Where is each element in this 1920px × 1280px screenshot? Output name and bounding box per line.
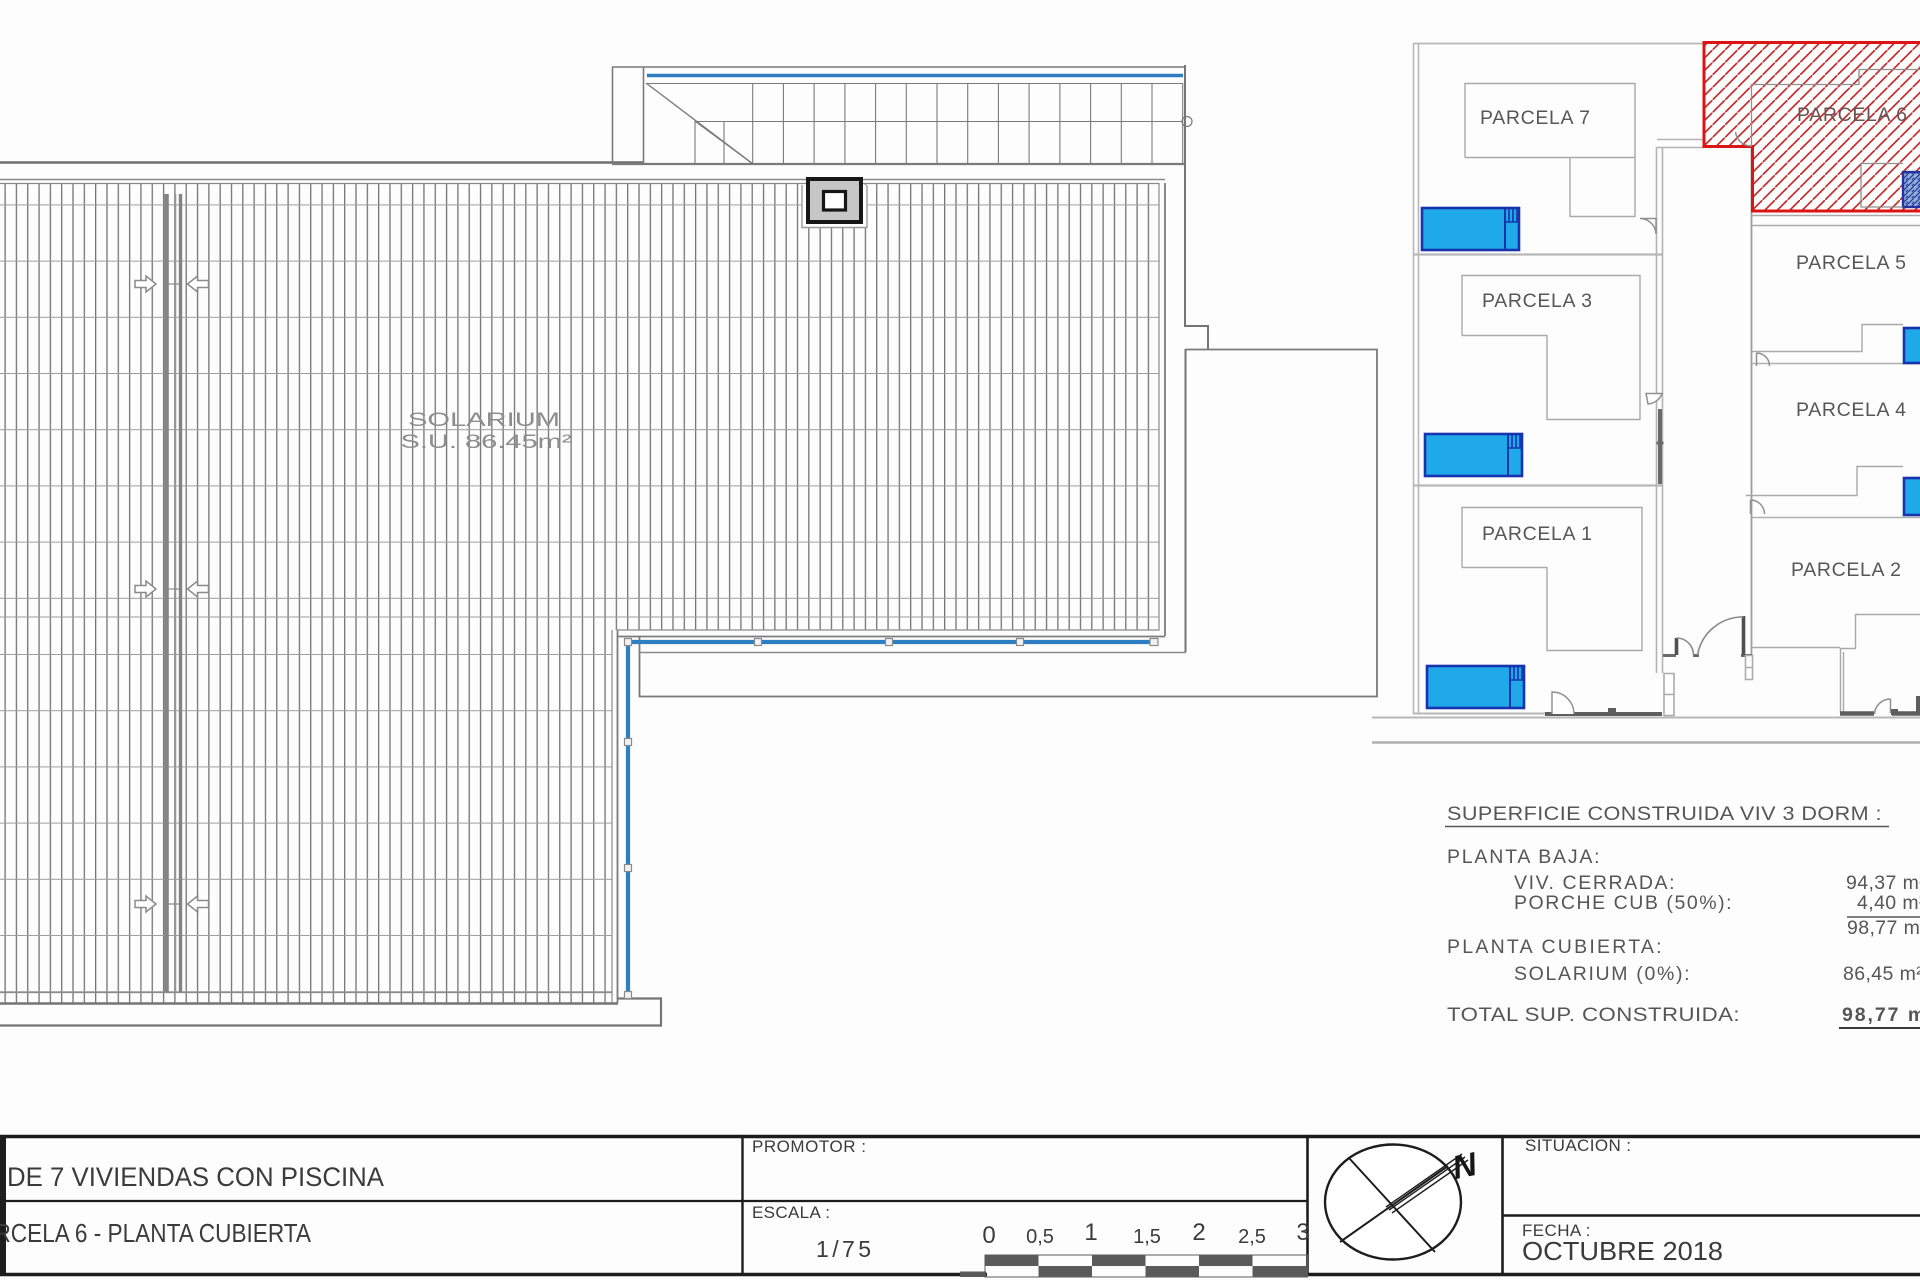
svg-text:3: 3 (1296, 1219, 1309, 1246)
svg-text:PARCELA 5: PARCELA 5 (1796, 252, 1906, 274)
svg-text:2,5: 2,5 (1238, 1226, 1266, 1248)
svg-text:DE 7 VIVIENDAS CON PISCINA: DE 7 VIVIENDAS CON PISCINA (7, 1162, 384, 1192)
svg-text:PARCELA 1: PARCELA 1 (1482, 523, 1592, 545)
svg-text:S.U. 86.45m²: S.U. 86.45m² (401, 432, 572, 453)
svg-text:ESCALA :: ESCALA : (752, 1203, 830, 1222)
svg-text:PARCELA 2: PARCELA 2 (1791, 559, 1901, 581)
svg-text:SOLARIUM (0%):: SOLARIUM (0%): (1514, 963, 1690, 985)
svg-text:PLANTA BAJA:: PLANTA BAJA: (1447, 846, 1600, 868)
svg-text:1/75: 1/75 (816, 1236, 871, 1262)
svg-text:1: 1 (1084, 1219, 1097, 1246)
svg-text:86,45 m²: 86,45 m² (1843, 963, 1920, 985)
svg-text:SOLARIUM: SOLARIUM (408, 410, 560, 431)
svg-text:TOTAL SUP. CONSTRUIDA:: TOTAL SUP. CONSTRUIDA: (1447, 1004, 1740, 1026)
svg-text:98,77 m²: 98,77 m² (1847, 917, 1920, 939)
svg-text:94,37 m²: 94,37 m² (1846, 872, 1920, 894)
svg-text:PARCELA 4: PARCELA 4 (1796, 399, 1906, 421)
svg-text:PARCELA 6 - PLANTA CUBIERTA: PARCELA 6 - PLANTA CUBIERTA (0, 1218, 312, 1248)
svg-text:SITUACION :: SITUACION : (1525, 1136, 1631, 1155)
svg-text:1,5: 1,5 (1133, 1226, 1161, 1248)
svg-text:PARCELA 3: PARCELA 3 (1482, 290, 1592, 312)
svg-text:OCTUBRE 2018: OCTUBRE 2018 (1522, 1236, 1723, 1266)
svg-text:SUPERFICIE CONSTRUIDA VIV 3 DO: SUPERFICIE CONSTRUIDA VIV 3 DORM : (1447, 803, 1882, 825)
svg-text:VIV. CERRADA:: VIV. CERRADA: (1514, 872, 1675, 894)
svg-text:98,77 m²: 98,77 m² (1842, 1004, 1920, 1026)
svg-text:0: 0 (982, 1222, 995, 1249)
svg-text:PLANTA CUBIERTA:: PLANTA CUBIERTA: (1447, 936, 1662, 958)
svg-text:PARCELA 6: PARCELA 6 (1797, 104, 1907, 126)
svg-text:PORCHE CUB (50%):: PORCHE CUB (50%): (1514, 892, 1732, 914)
svg-text:PARCELA 7: PARCELA 7 (1480, 107, 1590, 129)
svg-text:4,40 m²: 4,40 m² (1857, 892, 1920, 914)
svg-text:PROMOTOR :: PROMOTOR : (752, 1137, 866, 1156)
svg-text:0,5: 0,5 (1026, 1226, 1054, 1248)
svg-text:2: 2 (1192, 1219, 1205, 1246)
